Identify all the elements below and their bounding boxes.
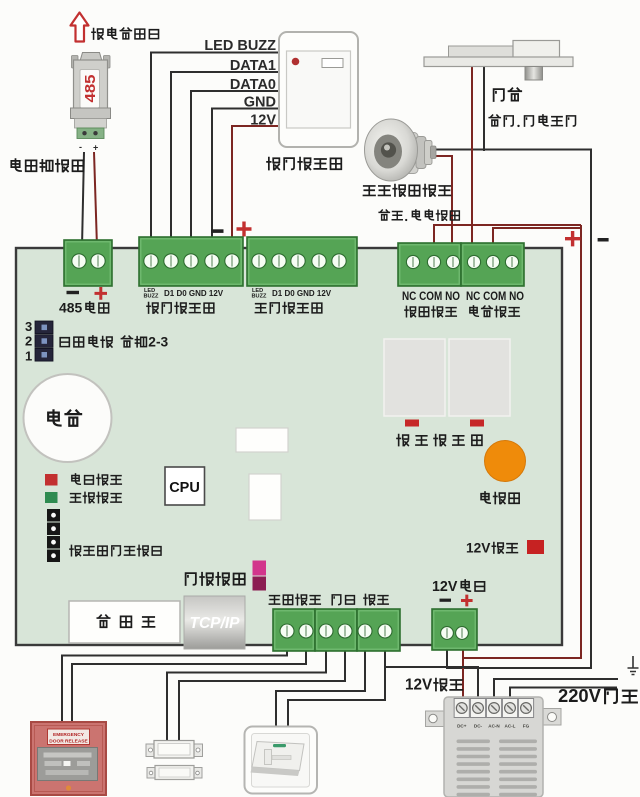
svg-text:DC+: DC+ (457, 724, 467, 729)
svg-text:485: 485 (59, 300, 82, 316)
svg-text:1: 1 (25, 349, 32, 364)
svg-text:DATA1: DATA1 (230, 58, 276, 74)
svg-text:NC COM NO: NC COM NO (402, 291, 460, 303)
svg-text:12V: 12V (250, 113, 276, 129)
svg-text:TCP/IP: TCP/IP (190, 615, 241, 632)
svg-text:FG: FG (523, 724, 530, 729)
svg-text:D1 D0 GND 12V: D1 D0 GND 12V (272, 289, 332, 298)
svg-text:12V: 12V (466, 540, 491, 556)
svg-text:3: 3 (25, 319, 32, 334)
svg-text:EMERGENCY: EMERGENCY (53, 732, 85, 738)
svg-text:-: - (79, 142, 82, 152)
svg-text:2-3: 2-3 (148, 334, 168, 350)
svg-text:220V: 220V (558, 686, 601, 707)
svg-text:NC COM NO: NC COM NO (466, 291, 524, 303)
svg-text:+: + (93, 143, 98, 153)
svg-text:AC-L: AC-L (505, 724, 516, 729)
svg-text:2: 2 (25, 334, 32, 349)
svg-text:BUZZ: BUZZ (144, 294, 159, 300)
svg-text:AC-N: AC-N (488, 724, 500, 729)
svg-text:DATA0: DATA0 (230, 77, 276, 93)
svg-text:DOOR RELEASE: DOOR RELEASE (49, 739, 88, 745)
svg-text:CPU: CPU (169, 480, 200, 496)
svg-text:12V: 12V (405, 677, 433, 694)
svg-text:485: 485 (82, 75, 99, 103)
svg-text:GND: GND (244, 95, 276, 111)
svg-text:BUZZ: BUZZ (252, 294, 267, 300)
svg-text:LED BUZZ: LED BUZZ (204, 38, 276, 54)
svg-text:D1 D0 GND 12V: D1 D0 GND 12V (164, 289, 224, 298)
svg-text:12V: 12V (432, 579, 458, 595)
svg-text:DC-: DC- (474, 724, 483, 729)
